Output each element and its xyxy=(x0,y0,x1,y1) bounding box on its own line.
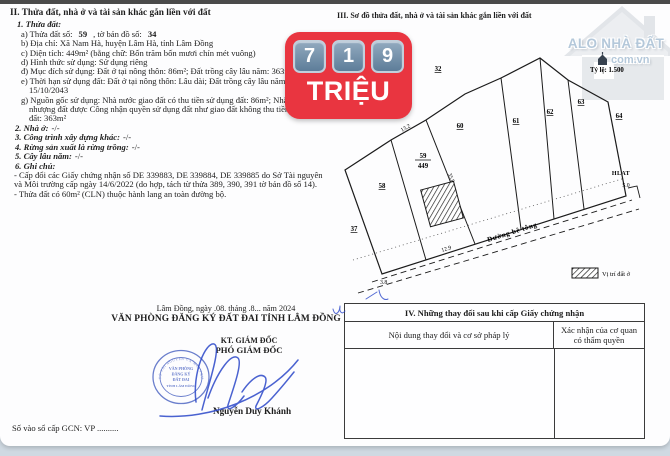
logo-title: ALO NHÀ ĐẤT xyxy=(562,36,670,51)
logo-domain-row: com.vn xyxy=(596,52,670,67)
note-corridor: - Thửa đất có 60m² (CLN) thuộc hành lang… xyxy=(14,190,328,199)
field-use-term: e) Thời hạn sử dụng đất: Đất ở tại nông … xyxy=(10,77,328,96)
scanned-land-certificate: II. Thửa đất, nhà ở và tài sản khác gắn … xyxy=(0,0,670,456)
parcel-label-32: 32 xyxy=(435,66,442,73)
table4-empty-cell-right xyxy=(555,349,644,438)
road-corner-mark xyxy=(628,186,640,198)
signer-name: Nguyễn Duy Khánh xyxy=(196,406,308,416)
residential-area-hatch xyxy=(421,181,464,227)
parcel-label-58: 58 xyxy=(379,183,386,190)
road-edge-lower xyxy=(358,209,639,293)
stamp-line-4: TỈNH LÂM ĐỒNG xyxy=(166,383,196,388)
parcel-label-63: 63 xyxy=(578,99,585,106)
map-scale-label: Tỷ lệ: 1.500 xyxy=(590,67,624,74)
measure-5-0: 5.0 xyxy=(622,183,629,189)
note-reissue: - Cấp đổi các Giấy chứng nhận số DE 3398… xyxy=(14,171,328,190)
table4-header-row: Nội dung thay đổi và cơ sở pháp lý Xác n… xyxy=(345,322,644,349)
keycap-digit-1: 1 xyxy=(332,40,365,73)
table4-empty-body xyxy=(345,349,644,438)
office-name: VĂN PHÒNG ĐĂNG KÝ ĐẤT ĐAI TỈNH LÂM ĐỒNG xyxy=(100,314,352,324)
signature-block: Lâm Đồng, ngày .08. tháng .8... năm 2024… xyxy=(100,304,352,324)
parcel-label-61: 61 xyxy=(513,118,520,125)
safety-corridor-line xyxy=(353,178,625,260)
parcel-label-59: 59 xyxy=(420,153,427,160)
date-line: Lâm Đồng, ngày .08. tháng .8... năm 2024 xyxy=(100,304,352,313)
keycap-digit-7: 7 xyxy=(293,40,326,73)
stamp-line-2: ĐĂNG KÝ xyxy=(172,372,191,377)
field-use-origin: g) Nguồn gốc sử dụng: Nhà nước giao đất … xyxy=(10,96,328,124)
parcel-59-area: 449 xyxy=(418,163,429,170)
stamp-line-3: ĐẤT ĐAI xyxy=(173,377,190,382)
price-keycaps: 7 1 9 xyxy=(293,40,404,73)
alo-nha-dat-logo: ALO NHÀ ĐẤT com.vn xyxy=(562,36,670,67)
road-name-label: Đường bê tông xyxy=(486,221,538,244)
official-stamp: SỞ TÀI NGUYÊN VÀ MÔI TRƯỜNG VĂN PHÒNG ĐĂ… xyxy=(150,348,212,408)
measure-13-2: 13.2 xyxy=(400,123,412,133)
gcn-register-line: Số vào sổ cấp GCN: VP .......... xyxy=(12,423,118,433)
section2-title: II. Thửa đất, nhà ở và tài sản khác gắn … xyxy=(10,9,328,18)
legend-label: Vị trí đất ở xyxy=(602,271,631,278)
hlat-label: HLAT xyxy=(612,171,630,177)
field-perennial: 5. Cây lâu năm:-/- xyxy=(15,152,328,161)
table4-title: IV. Những thay đổi sau khi cấp Giấy chứn… xyxy=(345,304,644,322)
price-unit-label: TRIỆU xyxy=(307,76,391,106)
stamp-line-1: VĂN PHÒNG xyxy=(169,366,193,371)
logo-domain: com.vn xyxy=(611,54,650,66)
parcel-label-60: 60 xyxy=(457,123,464,130)
kt-giam-doc: KT. GIÁM ĐỐC xyxy=(188,336,310,345)
parcel-label-64: 64 xyxy=(616,113,623,120)
section3-title: III. Sơ đồ thửa đất, nhà ở và tài sản kh… xyxy=(337,11,532,20)
keycap-digit-9: 9 xyxy=(371,40,404,73)
table4-col-confirmation: Xác nhận của cơ quan có thẩm quyền xyxy=(554,322,644,348)
price-badge: 7 1 9 TRIỆU xyxy=(285,32,412,119)
parcel-label-37: 37 xyxy=(351,226,358,233)
logo-house-icon xyxy=(596,52,609,67)
parcel-label-62: 62 xyxy=(547,109,554,116)
measure-3-8: 3.8 xyxy=(380,280,387,286)
section-thua-dat: II. Thửa đất, nhà ở và tài sản khác gắn … xyxy=(10,9,328,199)
table4-col-content: Nội dung thay đổi và cơ sở pháp lý xyxy=(345,322,554,348)
table4-empty-cell-left xyxy=(345,349,555,438)
changes-table: IV. Những thay đổi sau khi cấp Giấy chứn… xyxy=(344,303,645,439)
legend-hatch-swatch xyxy=(572,268,598,278)
